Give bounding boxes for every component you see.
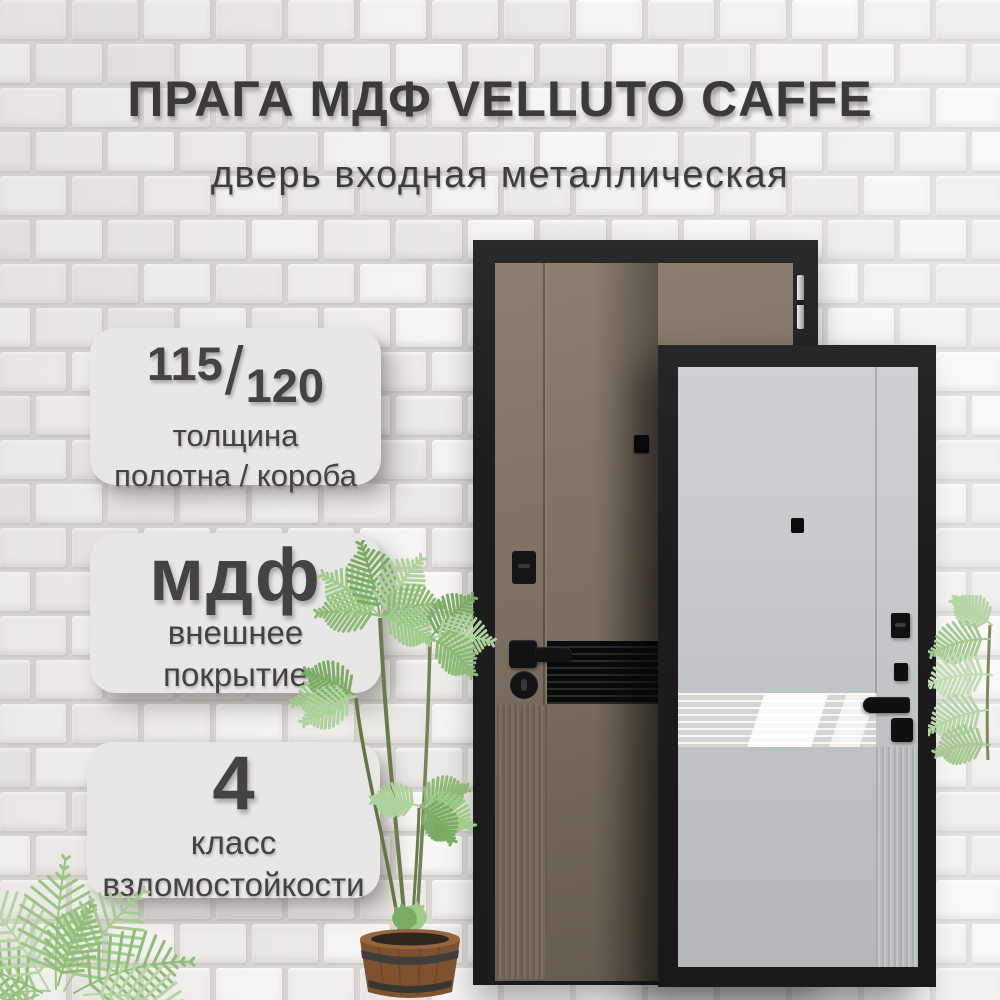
brick [288,968,354,1000]
burglary-caption-1: класс [87,822,380,864]
lock-cylinder [510,671,538,699]
brick [0,660,30,699]
hinge [797,275,804,329]
brick [936,968,1000,1000]
brick [0,616,66,655]
brick [720,0,786,39]
brick [0,572,30,611]
brick [72,704,138,743]
brick [0,484,30,523]
brick [972,836,1000,875]
brick [972,572,1000,611]
brick [72,264,138,303]
brick [0,792,66,831]
brick [324,220,390,259]
brick [828,220,894,259]
header: ПРАГА МДФ VELLUTO CAFFE дверь входная ме… [0,70,1000,197]
brick [936,352,1000,391]
brick [0,748,30,787]
brick [360,264,426,303]
brick [936,880,1000,919]
spec-badge-burglary-class: 4 класс взломостойкости [87,742,380,898]
brick [288,704,354,743]
brick [900,308,966,347]
door-interior-side [658,345,936,987]
brick [396,836,462,875]
brick [828,308,894,347]
burglary-class-value: 4 [87,746,380,822]
brick [972,748,1000,787]
brick [0,704,66,743]
brick [900,220,966,259]
thickness-separator: / [225,340,244,403]
brick [360,704,426,743]
brick [576,0,642,39]
brick [936,0,1000,39]
thickness-leaf-value: 115 [147,340,223,387]
brick [216,704,282,743]
brick [972,924,1000,963]
lock-escutcheon [894,663,908,681]
brick [432,0,498,39]
brick [972,660,1000,699]
door-handle [863,697,910,713]
brick [288,264,354,303]
brick [396,924,462,963]
door-handle [535,647,572,662]
thickness-values: 115 / 120 [90,340,381,416]
product-subtitle: дверь входная металлическая [0,154,1000,197]
brick [324,924,390,963]
brick [108,924,174,963]
thickness-frame-value: 120 [246,362,324,409]
burglary-caption-2: взломостойкости [87,864,380,906]
brick [0,440,66,479]
brick [0,968,66,1000]
handle-rosette [891,718,913,742]
brick [144,704,210,743]
brick [792,0,858,39]
brick [936,440,1000,479]
brick [396,220,462,259]
brick [216,968,282,1000]
brick [0,220,30,259]
brick [936,704,1000,743]
deadbolt-thumbturn [891,613,910,638]
brick [396,308,462,347]
product-card: ПРАГА МДФ VELLUTO CAFFE дверь входная ме… [0,0,1000,1000]
brick [72,968,138,1000]
brick [0,396,30,435]
coating-caption-1: внешнее [90,612,381,654]
brick [0,924,30,963]
brick [288,0,354,39]
brick [936,264,1000,303]
brick [144,0,210,39]
brick [0,0,66,39]
brick [396,572,462,611]
brick [396,484,462,523]
fluted-panel [876,747,918,967]
coating-caption-2: покрытие [90,654,381,696]
brick [144,264,210,303]
brick [72,0,138,39]
fluted-panel [497,705,547,979]
brick [108,220,174,259]
coating-value: мдф [90,539,381,612]
mirror-strip [678,693,876,747]
brick [252,924,318,963]
brick [972,396,1000,435]
panel-seam [543,263,545,711]
door-interior-leaf [678,367,918,967]
brick [36,924,102,963]
deadbolt-thumbturn [512,551,536,584]
brick [936,616,1000,655]
brick [36,220,102,259]
brick [180,924,246,963]
brick [972,308,1000,347]
brick [252,220,318,259]
brick [180,220,246,259]
brick [0,352,66,391]
brick [396,748,462,787]
brick [648,0,714,39]
brick [144,968,210,1000]
brick [0,836,30,875]
brick [936,792,1000,831]
handle-rosette [509,640,537,668]
brick [396,660,462,699]
cast-shadow [595,263,658,981]
brick [0,308,30,347]
product-title: ПРАГА МДФ VELLUTO CAFFE [0,70,1000,128]
brick [216,0,282,39]
brick [936,528,1000,567]
brick [972,220,1000,259]
brick [396,396,462,435]
brick [360,0,426,39]
brick [360,968,426,1000]
brick [864,0,930,39]
thickness-caption-2: полотна / короба [90,456,381,496]
peephole [791,518,804,533]
thickness-caption-1: толщина [90,416,381,456]
panel-seam [875,367,877,693]
brick [0,880,66,919]
brick [864,264,930,303]
brick [0,528,66,567]
brick [0,264,66,303]
brick [504,0,570,39]
brick [216,264,282,303]
spec-badge-thickness: 115 / 120 толщина полотна / короба [90,328,381,485]
brick [972,484,1000,523]
spec-badge-coating: мдф внешнее покрытие [90,533,381,693]
